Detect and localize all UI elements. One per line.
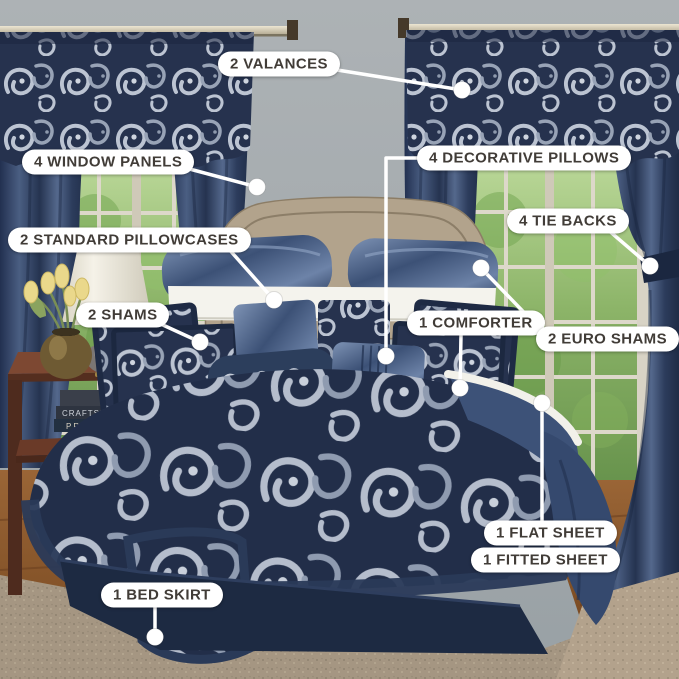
callout-tie-backs: 4 TIE BACKS — [507, 209, 629, 234]
callout-euro-shams: 2 EURO SHAMS — [536, 327, 679, 352]
callout-window-panels: 4 WINDOW PANELS — [22, 150, 194, 175]
callout-flat-sheet: 1 FLAT SHEET — [484, 521, 617, 546]
callout-valances: 2 VALANCES — [218, 52, 340, 77]
finial-icon — [287, 20, 298, 40]
callout-shams: 2 SHAMS — [76, 303, 169, 328]
valance-left — [0, 32, 254, 168]
callout-standard-pillowcases: 2 STANDARD PILLOWCASES — [8, 228, 251, 253]
callout-fitted-sheet: 1 FITTED SHEET — [471, 548, 620, 573]
callout-decorative-pillows: 4 DECORATIVE PILLOWS — [417, 146, 631, 171]
product-photo-scene: CRAFTSMAN PREPPY — [0, 0, 679, 679]
callout-bed-skirt: 1 BED SKIRT — [101, 583, 223, 608]
callout-comforter: 1 COMFORTER — [407, 311, 545, 336]
